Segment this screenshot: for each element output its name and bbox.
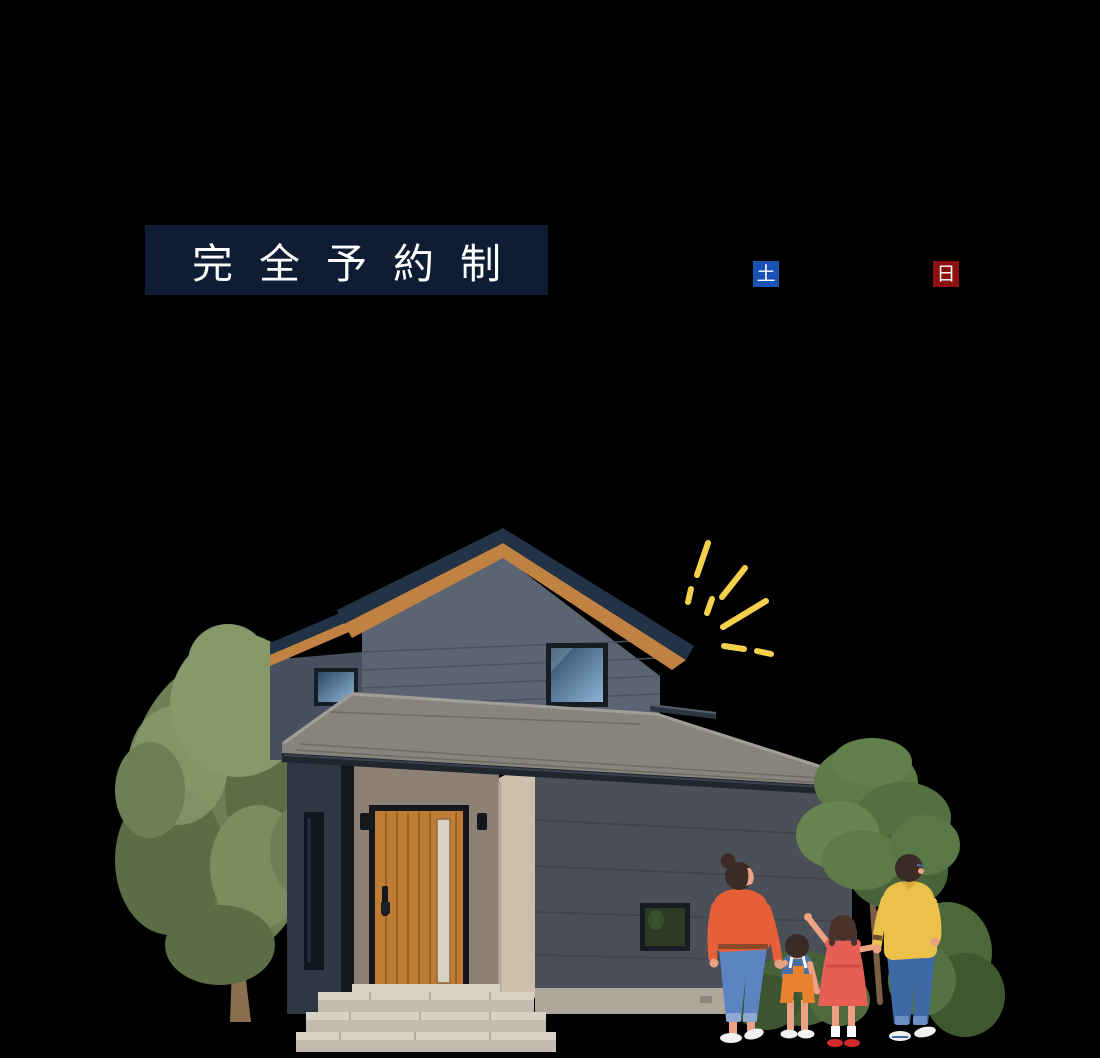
corner-post [341,752,354,1004]
upper-window [546,643,608,707]
porch-lamp-icon [360,813,370,830]
house-illustration [0,0,1100,1058]
sparkle-icon [688,543,771,654]
small-window [640,903,690,951]
hero-banner: 完全予約制 土 日 [0,0,1100,1058]
entry-pillar [499,760,535,998]
side-window [304,812,324,970]
front-door [369,805,469,997]
door-glass-slit [437,819,450,983]
porch-lamp-icon [477,813,487,830]
entrance-steps [296,992,556,1052]
